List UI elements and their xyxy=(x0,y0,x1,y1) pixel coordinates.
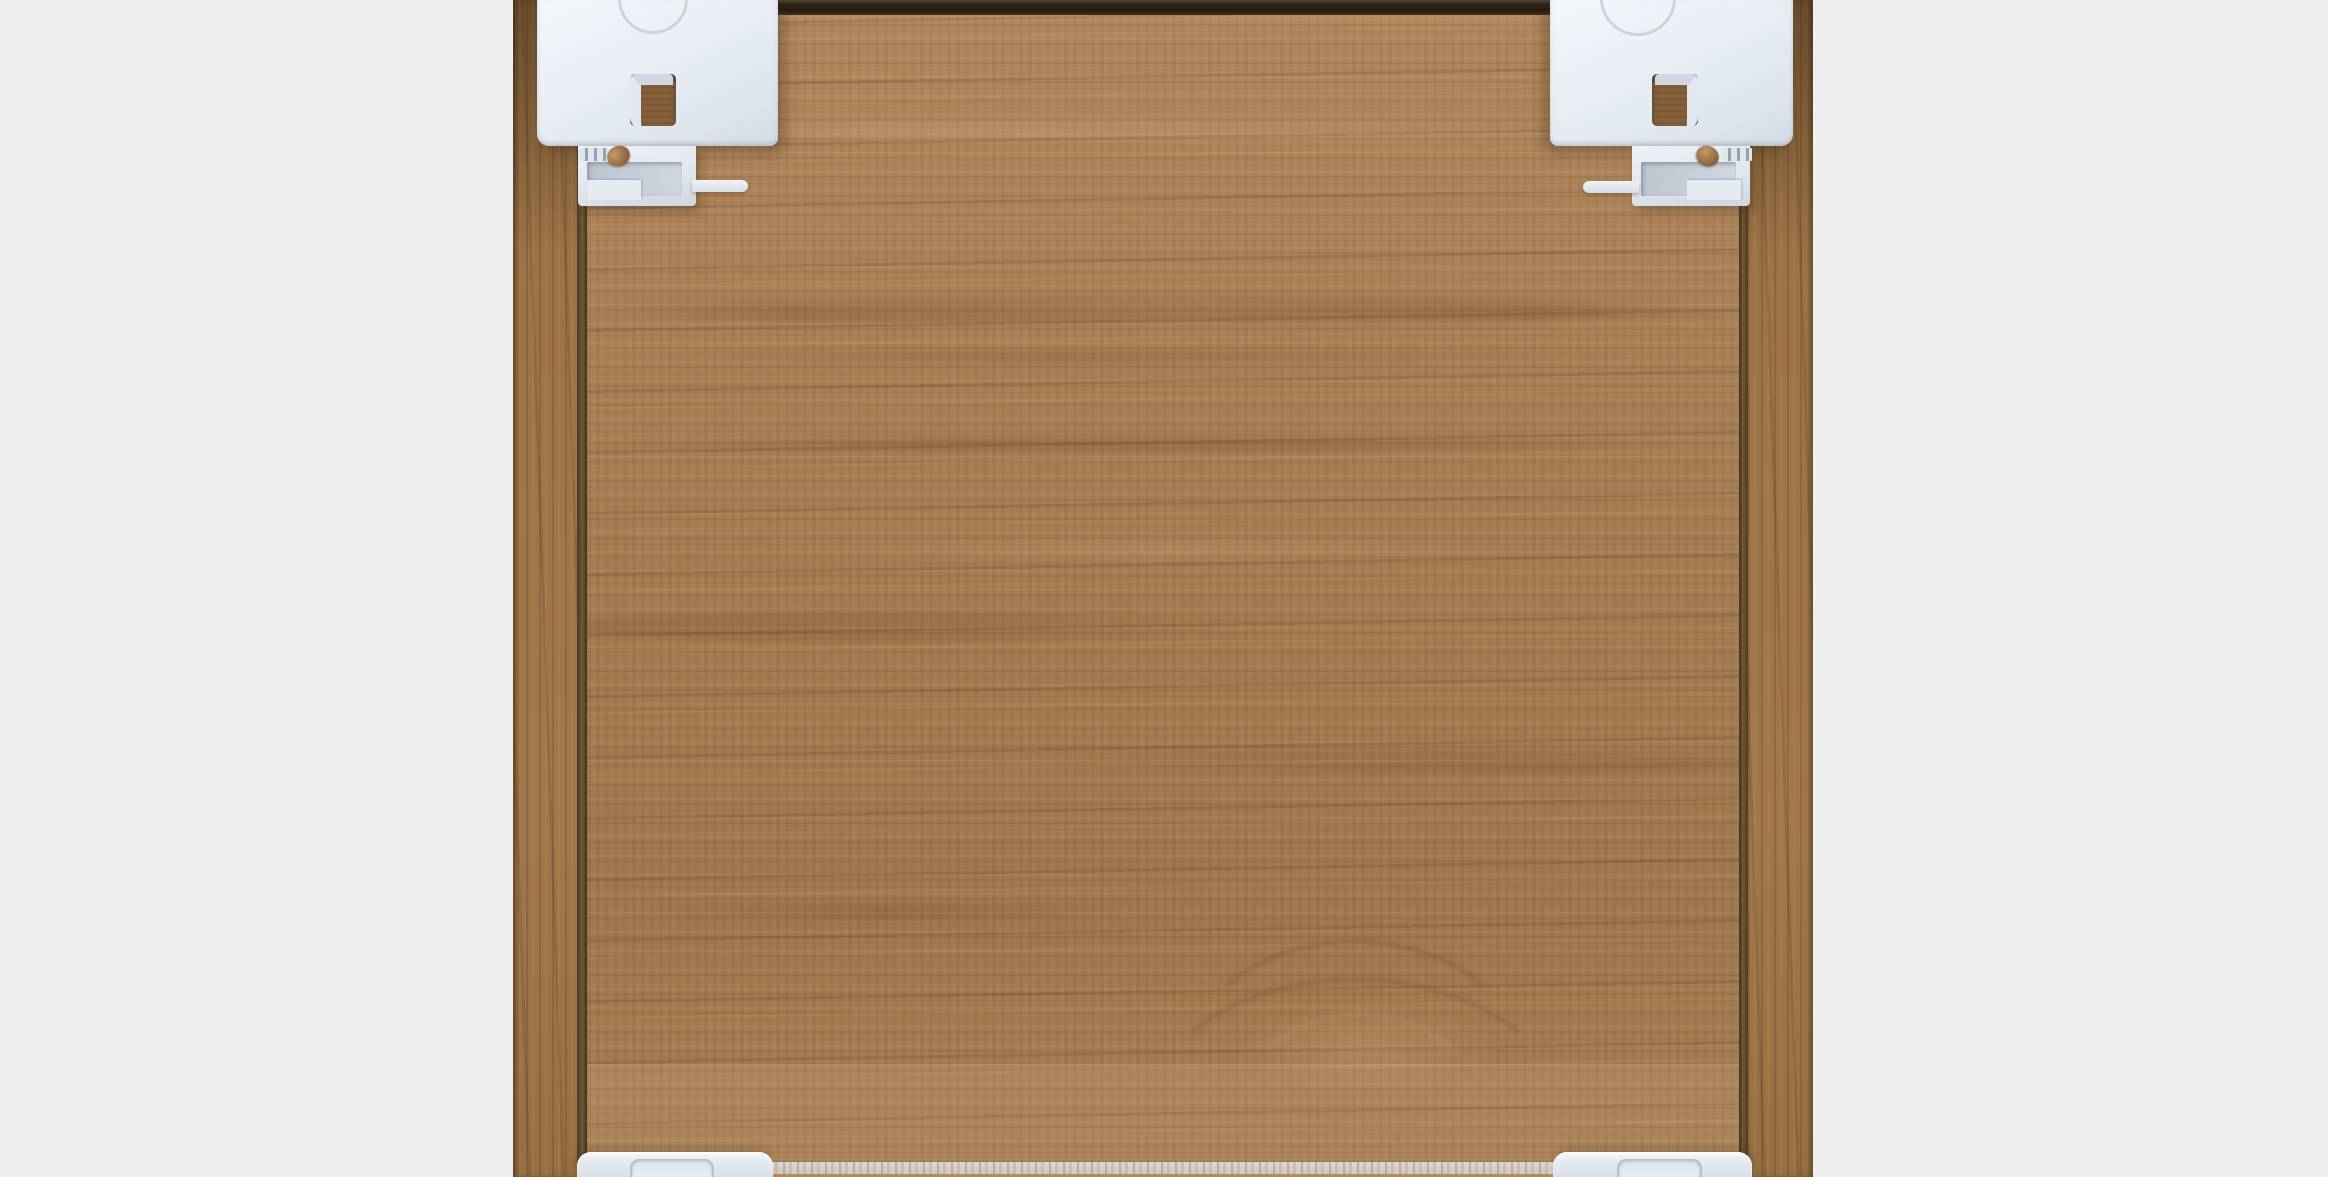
locking-pin xyxy=(1583,181,1639,193)
clip-teeth xyxy=(1722,148,1752,161)
locking-pin xyxy=(692,180,748,192)
bracket-body xyxy=(1550,0,1793,146)
bracket-body xyxy=(537,0,778,146)
hole-lip xyxy=(630,74,673,129)
bracket-top-left xyxy=(537,0,778,210)
wood-grain-streak xyxy=(702,540,1624,560)
bracket-center-inset xyxy=(1617,1159,1702,1177)
wood-grain-streak xyxy=(633,352,1647,364)
bracket-clip xyxy=(1632,146,1750,206)
bracket-bottom-right xyxy=(1553,1152,1752,1177)
wood-grain-streak xyxy=(587,298,1739,324)
bracket-clip xyxy=(578,146,696,206)
bracket-square-hole xyxy=(1652,74,1698,126)
wood-grain-streak xyxy=(645,905,1129,919)
panel-lower-band xyxy=(587,1063,1739,1163)
clip-teeth xyxy=(579,148,609,161)
wood-grain-streak xyxy=(587,612,1232,642)
bracket-top-right xyxy=(1550,0,1793,210)
bracket-bottom-left xyxy=(577,1152,773,1177)
wood-grain-streak xyxy=(587,436,1739,452)
bracket-square-hole xyxy=(630,74,676,126)
screw-recess-arc xyxy=(618,0,688,34)
clip-step xyxy=(587,180,641,200)
wood-grain-streak xyxy=(1048,752,1739,774)
bracket-center-inset xyxy=(630,1159,714,1177)
clip-step xyxy=(1687,180,1741,200)
product-render-canvas xyxy=(0,0,2328,1177)
hole-lip xyxy=(1655,74,1698,129)
screw-recess-arc xyxy=(1600,0,1676,36)
